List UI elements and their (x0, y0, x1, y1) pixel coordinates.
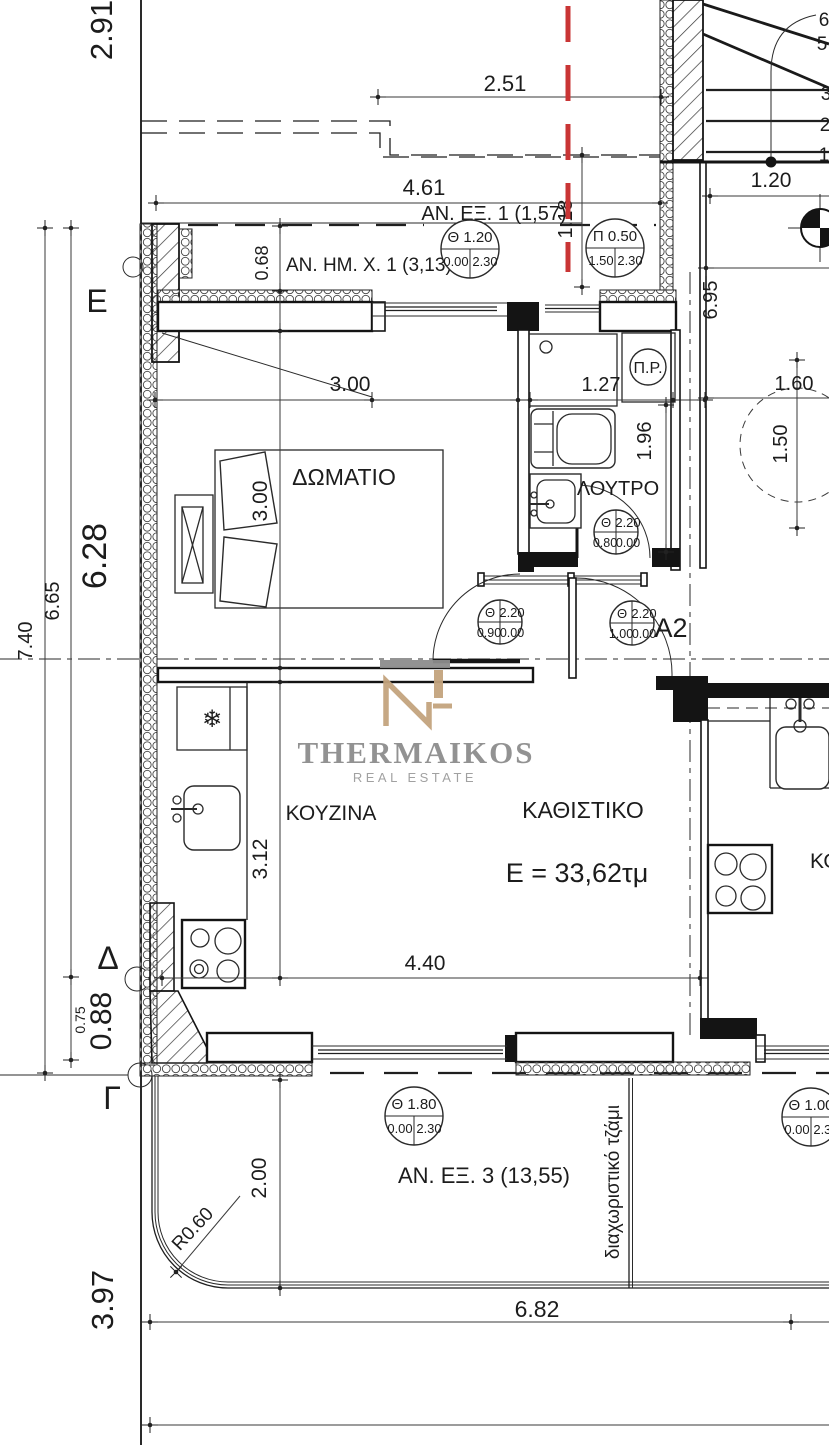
grid-label-e: Ε (86, 283, 107, 319)
apartment-id: Α2 (654, 613, 687, 643)
door-tag-balcony3-right: Θ 1.00 0.00 2.30 (782, 1088, 829, 1146)
kitchen-divider-wall (158, 668, 533, 682)
kitchen-sill-wall (207, 1033, 312, 1062)
svg-text:Θ: Θ (485, 605, 495, 620)
stair-wall (673, 0, 703, 160)
dim-075: 0.75 (72, 1006, 88, 1033)
dim-740: 7.40 (15, 622, 37, 661)
column (507, 302, 539, 331)
svg-text:0.00: 0.00 (632, 627, 656, 641)
grid-label-g: Γ (103, 1080, 121, 1116)
door-tag-balcony1-window: Θ 1.20 0.00 2.30 (441, 220, 499, 278)
fridge-snowflake-icon: ❄ (202, 706, 222, 733)
bath-left-wall (518, 330, 529, 554)
svg-text:1.00: 1.00 (609, 627, 633, 641)
glass-divider-label: διαχωριστικό τζάμι (603, 1105, 624, 1259)
dim-291: 2.91 (84, 0, 119, 60)
svg-text:Θ 1.80: Θ 1.80 (391, 1096, 436, 1113)
svg-text:0.00: 0.00 (500, 626, 524, 640)
pillow (220, 537, 277, 607)
bedroom-window (372, 303, 507, 316)
svg-text:Θ 1.20: Θ 1.20 (447, 229, 492, 246)
stair-step-6: 6 (819, 10, 829, 31)
stair-step-2: 2 (820, 115, 829, 136)
bath-top-wall (600, 302, 676, 331)
svg-text:2.30: 2.30 (617, 253, 642, 268)
balcony3-label: ΑΝ. ΕΞ. 3 (13,55) (398, 1163, 570, 1188)
dim-150: 1.50 (770, 425, 792, 464)
svg-text:2.30: 2.30 (472, 254, 497, 269)
bathroom-window (545, 305, 600, 312)
grid-letters: Ε Δ Γ (86, 283, 120, 1116)
brand-name: THERMAIKOS (297, 735, 534, 770)
hall-glazing (478, 573, 647, 586)
stair-step-1: 1 (819, 145, 829, 166)
drain (540, 341, 552, 353)
bedroom-label: ΔΩΜΑΤΙΟ (292, 464, 396, 490)
kitchen-sink (184, 786, 240, 850)
neighbor-kitchen-label: ΚΟΥΖΙΝΑ (810, 850, 829, 873)
dim-068: 0.68 (252, 245, 272, 280)
svg-text:2.20: 2.20 (499, 605, 524, 620)
door-tag-bedroom: Θ 2.20 0.90 0.00 (477, 600, 525, 644)
svg-text:0.00: 0.00 (443, 254, 468, 269)
svg-text:0.00: 0.00 (387, 1121, 412, 1136)
floor-plan-page: 2.91 2.51 4.61 1.18 1.20 0.68 6.95 3.00 … (0, 0, 829, 1445)
floor-plan-drawing: 2.91 2.51 4.61 1.18 1.20 0.68 6.95 3.00 … (0, 0, 829, 1445)
dim-440: 4.40 (405, 952, 446, 975)
dim-120: 1.20 (751, 169, 792, 192)
bedroom-top-wall (158, 302, 372, 331)
door-tag-balcony3-left: Θ 1.80 0.00 2.30 (385, 1087, 443, 1145)
right-wall (700, 162, 706, 568)
bathroom-label: ΛΟΥΤΡΟ (577, 478, 659, 500)
roof-overhang-dashed (141, 121, 661, 155)
svg-text:Θ: Θ (601, 515, 611, 530)
dim-251: 2.51 (484, 71, 527, 96)
dim-682: 6.82 (515, 1296, 560, 1322)
room-labels: ΔΩΜΑΤΙΟ ΛΟΥΤΡΟ Π.Ρ. ΚΟΥΖΙΝΑ ΚΑΘΙΣΤΙΚΟ Ε … (202, 203, 829, 1259)
water-heater-label: Π.Ρ. (633, 360, 662, 377)
svg-text:0.00: 0.00 (784, 1122, 809, 1137)
neighbor-kitchen-fixtures (708, 698, 829, 913)
stair-numbers: 1 2 3 5 6 (817, 10, 829, 166)
dim-628: 6.28 (76, 523, 114, 589)
dim-397: 3.97 (85, 1270, 120, 1330)
door-tag-bathroom: Θ 2.20 0.80 0.00 (593, 510, 641, 554)
svg-text:2.30: 2.30 (813, 1122, 829, 1137)
dim-088: 0.88 (85, 992, 118, 1050)
svg-text:1.50: 1.50 (588, 253, 613, 268)
dim-160: 1.60 (775, 373, 814, 395)
door-tag-balcony1-door: Π 0.50 1.50 2.30 (586, 219, 644, 277)
dim-300-bed: 3.00 (249, 481, 272, 522)
dim-r060: R0.60 (168, 1204, 218, 1255)
neighbor-stove (708, 845, 772, 913)
svg-text:Π 0.50: Π 0.50 (593, 228, 637, 245)
dim-200: 2.00 (248, 1158, 271, 1199)
stair-step-3: 3 (821, 84, 829, 105)
balcony2-label: ΑΝ. ΗΜ. Χ. 1 (3,13) (286, 255, 452, 276)
svg-text:2.30: 2.30 (416, 1121, 441, 1136)
logo-gray-bar (380, 660, 450, 668)
dim-127: 1.27 (582, 374, 621, 396)
balcony1-label: ΑΝ. ΕΞ. 1 (1,57) (421, 203, 566, 225)
dim-461: 4.61 (403, 175, 446, 200)
svg-text:Θ: Θ (617, 606, 627, 621)
dim-196: 1.96 (634, 422, 656, 461)
north-symbol (788, 194, 829, 262)
nightstand (175, 495, 213, 593)
area-label: Ε = 33,62τμ (506, 858, 649, 888)
dim-312: 3.12 (249, 839, 272, 880)
brand-tagline: REAL ESTATE (353, 770, 477, 785)
dim-695: 6.95 (700, 281, 722, 320)
svg-text:2.20: 2.20 (631, 606, 656, 621)
svg-text:0.90: 0.90 (477, 626, 501, 640)
neighbor-window (756, 1046, 829, 1059)
living-bottom-wall (516, 1033, 673, 1062)
dim-665: 6.65 (42, 582, 64, 621)
svg-text:0.80: 0.80 (593, 536, 617, 550)
stair-step-5: 5 (817, 34, 828, 55)
grid-label-d: Δ (97, 940, 118, 976)
kitchen-balcony-door-window (312, 1046, 507, 1059)
neighbor-sink (776, 727, 829, 789)
bathtub (531, 409, 615, 468)
dim-300-closet: 3.00 (330, 373, 371, 396)
svg-text:0.00: 0.00 (616, 536, 640, 550)
walk-line-start-dot (766, 157, 777, 168)
living-label: ΚΑΘΙΣΤΙΚΟ (522, 797, 644, 823)
kitchen-label: ΚΟΥΖΙΝΑ (286, 802, 377, 825)
door-tag-entry: Θ 2.20 1.00 0.00 (609, 601, 657, 645)
svg-text:Θ 1.00: Θ 1.00 (788, 1097, 829, 1114)
logo-monogram-icon (386, 681, 429, 726)
neighbor-top-wall (701, 683, 829, 698)
svg-text:2.20: 2.20 (615, 515, 640, 530)
